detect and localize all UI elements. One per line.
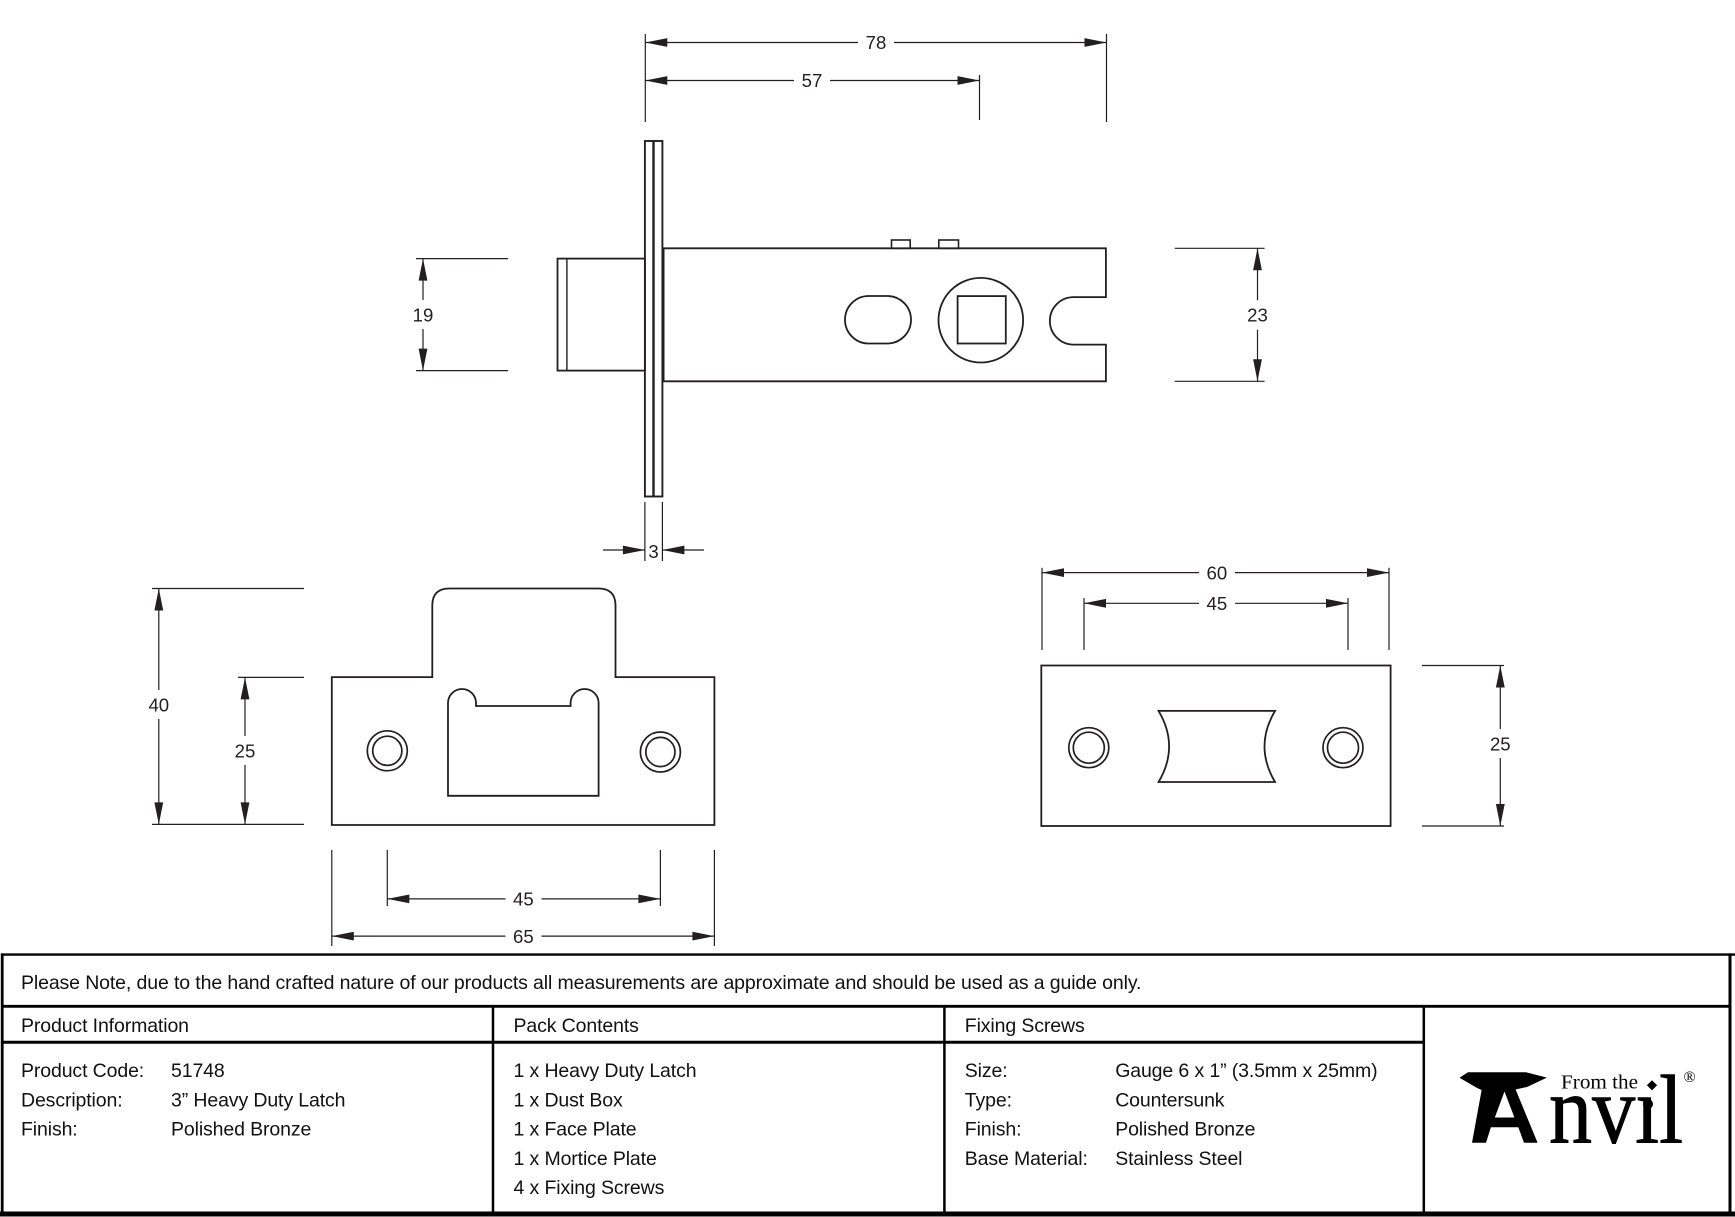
svg-text:Stainless Steel: Stainless Steel bbox=[1115, 1148, 1242, 1170]
svg-text:®: ® bbox=[1684, 1069, 1696, 1086]
svg-text:Base Material:: Base Material: bbox=[965, 1148, 1088, 1170]
svg-text:19: 19 bbox=[413, 304, 434, 325]
svg-text:45: 45 bbox=[1207, 593, 1228, 614]
svg-text:Gauge 6 x 1” (3.5mm x 25mm): Gauge 6 x 1” (3.5mm x 25mm) bbox=[1115, 1060, 1377, 1082]
svg-text:3” Heavy Duty Latch: 3” Heavy Duty Latch bbox=[171, 1089, 345, 1111]
svg-text:Type:: Type: bbox=[965, 1089, 1012, 1111]
svg-text:25: 25 bbox=[1490, 733, 1511, 754]
svg-text:51748: 51748 bbox=[171, 1060, 225, 1082]
svg-text:Please Note, due to the hand c: Please Note, due to the hand crafted nat… bbox=[21, 972, 1141, 994]
svg-text:Finish:: Finish: bbox=[21, 1119, 78, 1141]
svg-text:Size:: Size: bbox=[965, 1060, 1008, 1082]
svg-text:45: 45 bbox=[513, 889, 534, 910]
svg-text:1 x Face Plate: 1 x Face Plate bbox=[514, 1119, 637, 1141]
svg-text:57: 57 bbox=[802, 70, 823, 91]
svg-text:25: 25 bbox=[235, 740, 256, 761]
svg-text:Description:: Description: bbox=[21, 1089, 123, 1111]
svg-text:Polished Bronze: Polished Bronze bbox=[1115, 1119, 1255, 1141]
svg-text:Product Code:: Product Code: bbox=[21, 1060, 144, 1082]
svg-text:1 x Heavy Duty Latch: 1 x Heavy Duty Latch bbox=[514, 1060, 697, 1082]
svg-text:Product Information: Product Information bbox=[21, 1015, 189, 1037]
svg-text:nvıl: nvıl bbox=[1549, 1057, 1683, 1164]
svg-text:Pack Contents: Pack Contents bbox=[514, 1015, 640, 1037]
svg-text:1 x Dust Box: 1 x Dust Box bbox=[514, 1089, 623, 1111]
svg-text:4 x Fixing Screws: 4 x Fixing Screws bbox=[514, 1177, 665, 1199]
svg-text:23: 23 bbox=[1247, 304, 1268, 325]
svg-text:Polished Bronze: Polished Bronze bbox=[171, 1119, 311, 1141]
svg-text:78: 78 bbox=[866, 32, 887, 53]
svg-text:60: 60 bbox=[1207, 562, 1228, 583]
svg-text:40: 40 bbox=[148, 695, 169, 716]
svg-text:65: 65 bbox=[513, 926, 534, 947]
svg-text:Fixing Screws: Fixing Screws bbox=[965, 1015, 1085, 1037]
svg-text:Countersunk: Countersunk bbox=[1115, 1089, 1225, 1111]
svg-text:3: 3 bbox=[648, 541, 658, 562]
svg-text:1 x Mortice Plate: 1 x Mortice Plate bbox=[514, 1148, 657, 1170]
svg-text:Finish:: Finish: bbox=[965, 1119, 1022, 1141]
